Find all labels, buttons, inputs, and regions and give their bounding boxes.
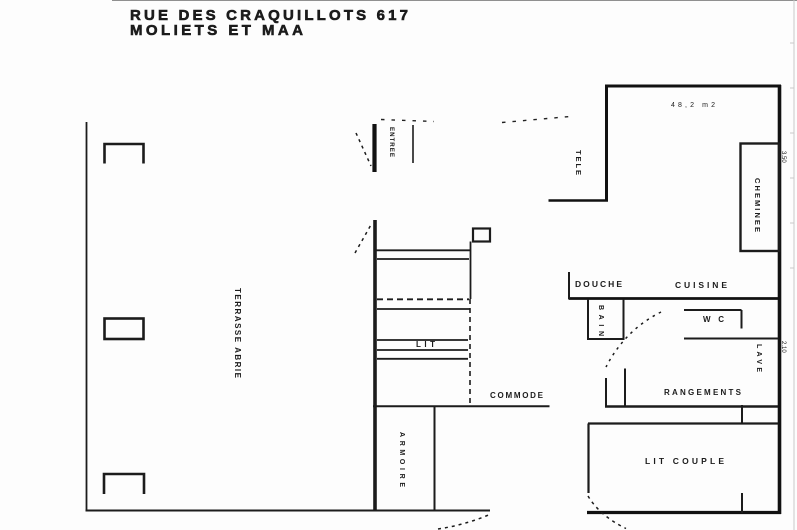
svg-text:WC: WC <box>703 315 724 324</box>
svg-text:TERRASSE ABRIE: TERRASSE ABRIE <box>233 288 242 379</box>
svg-text:COMMODE: COMMODE <box>490 391 544 400</box>
svg-text:LAVE: LAVE <box>755 344 762 372</box>
svg-text:RANGEMENTS: RANGEMENTS <box>664 388 742 397</box>
svg-text:3.50: 3.50 <box>780 151 786 163</box>
svg-text:2.10: 2.10 <box>780 341 786 353</box>
svg-text:TELE: TELE <box>574 150 583 175</box>
svg-text:LIT COUPLE: LIT COUPLE <box>645 456 724 466</box>
svg-text:DOUCHE: DOUCHE <box>575 279 622 289</box>
svg-text:48,2 m2: 48,2 m2 <box>671 102 715 109</box>
svg-text:CUISINE: CUISINE <box>675 280 727 290</box>
svg-text:MOLIETS ET MAA: MOLIETS ET MAA <box>130 22 303 39</box>
svg-text:LIT: LIT <box>416 340 435 349</box>
svg-text:CHEMINEE: CHEMINEE <box>753 178 762 232</box>
svg-text:BAIN: BAIN <box>597 305 604 336</box>
svg-text:ENTREE: ENTREE <box>388 127 395 157</box>
svg-text:ARMOIRE: ARMOIRE <box>398 432 405 487</box>
